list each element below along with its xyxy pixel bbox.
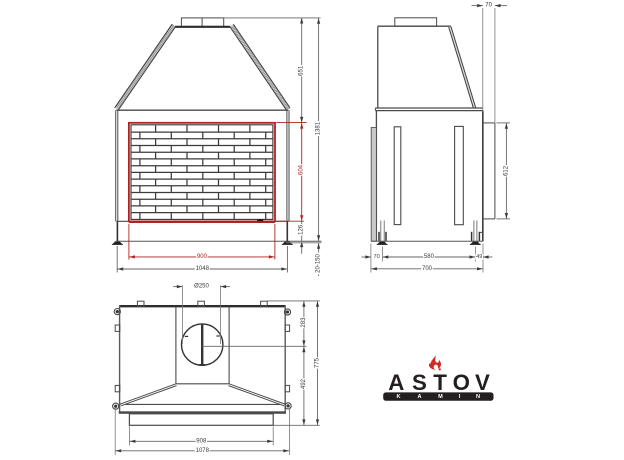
svg-text:1381: 1381 <box>316 121 322 135</box>
svg-text:S: S <box>412 370 427 395</box>
svg-text:492: 492 <box>301 378 307 389</box>
svg-text:775: 775 <box>315 357 321 368</box>
svg-text:651: 651 <box>299 65 305 76</box>
svg-text:Ø250: Ø250 <box>194 284 209 290</box>
svg-text:126: 126 <box>299 224 305 235</box>
svg-text:49: 49 <box>476 254 482 260</box>
svg-text:N: N <box>476 394 480 400</box>
svg-text:M: M <box>438 394 443 400</box>
svg-text:612: 612 <box>503 165 509 176</box>
svg-text:A: A <box>388 370 404 395</box>
svg-text:1048: 1048 <box>196 266 210 272</box>
svg-text:O: O <box>453 370 470 395</box>
svg-text:A: A <box>417 394 421 400</box>
svg-text:283: 283 <box>301 317 307 328</box>
svg-text:580: 580 <box>424 254 435 260</box>
svg-text:V: V <box>475 370 490 395</box>
svg-text:K: K <box>396 394 400 400</box>
svg-text:20-150: 20-150 <box>316 253 322 272</box>
svg-text:T: T <box>433 370 447 395</box>
svg-text:700: 700 <box>422 266 433 272</box>
svg-text:70: 70 <box>373 254 379 260</box>
svg-text:604: 604 <box>299 164 305 175</box>
svg-text:908: 908 <box>196 438 207 444</box>
svg-text:70: 70 <box>485 3 492 9</box>
svg-text:900: 900 <box>197 254 208 260</box>
svg-text:1078: 1078 <box>196 448 210 454</box>
